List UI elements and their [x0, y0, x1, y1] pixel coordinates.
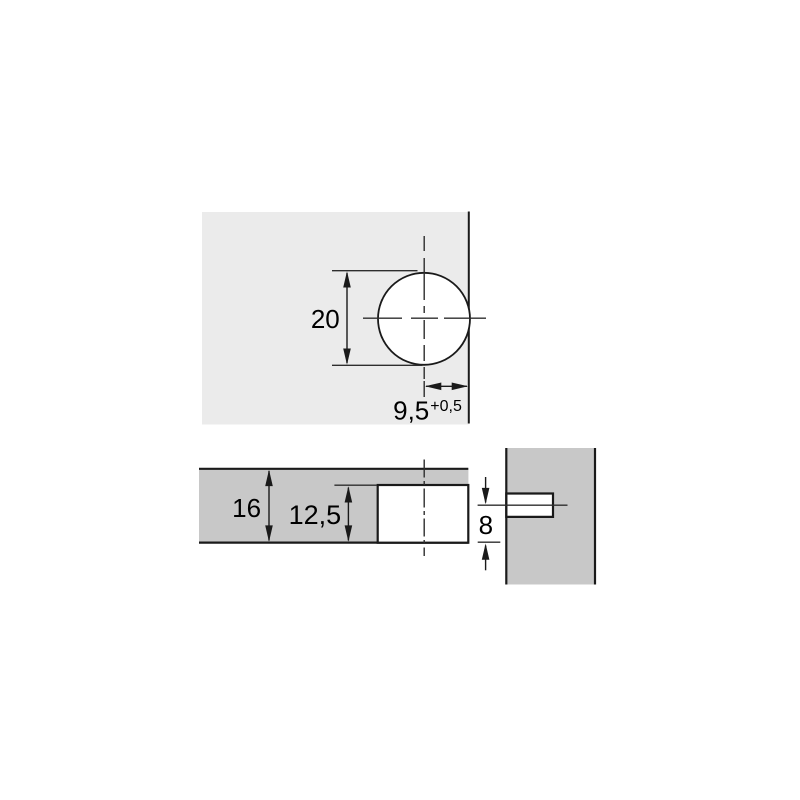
svg-text:+0,5: +0,5 [430, 398, 462, 415]
svg-text:9,5: 9,5 [393, 396, 429, 426]
svg-text:12,5: 12,5 [289, 500, 342, 530]
svg-text:20: 20 [311, 304, 340, 334]
svg-text:16: 16 [232, 493, 261, 523]
svg-text:8: 8 [479, 510, 493, 540]
